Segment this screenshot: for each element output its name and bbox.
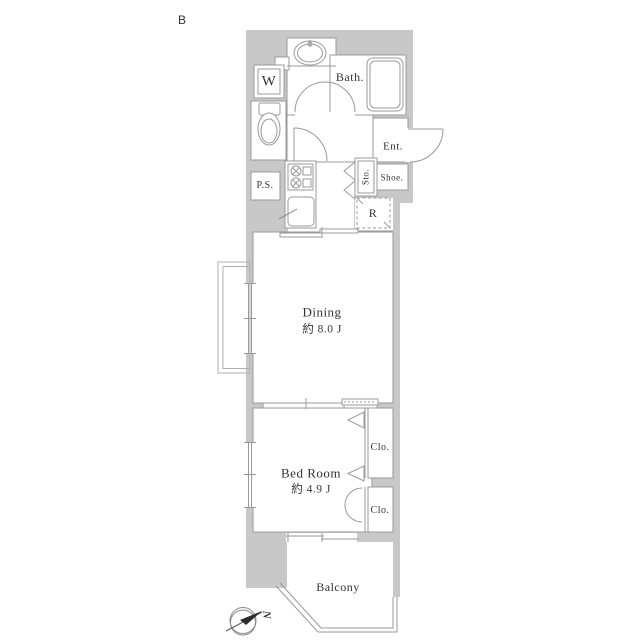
compass-north-label: N	[261, 611, 272, 619]
shoe-box-label: Shoe.	[381, 174, 404, 183]
refrigerator-label: R	[369, 207, 378, 219]
entrance-label: Ent.	[383, 142, 403, 153]
pipe-space-label: P.S.	[256, 181, 273, 191]
sliding-panel	[263, 403, 344, 408]
sliding-panel	[320, 229, 358, 233]
bathtub-inner	[370, 61, 400, 108]
unit-label: B	[178, 14, 186, 26]
balcony-label: Balcony	[316, 581, 360, 593]
dining-label: Dining	[302, 306, 341, 319]
floor-plan-drawing	[0, 0, 640, 640]
bath-label: Bath.	[336, 71, 364, 83]
bedroom-area-label: 約 4.9 J	[291, 484, 331, 496]
bedroom-label: Bed Room	[281, 467, 341, 480]
closet-lower-label: Clo.	[371, 506, 390, 516]
door-arc	[410, 129, 443, 162]
dining-area-label: 約 8.0 J	[302, 324, 342, 336]
compass-icon	[226, 608, 262, 636]
floor-plan: B W Bath. Ent. Sto. Shoe. P.S. R Dining …	[0, 0, 640, 640]
storage-label: Sto.	[362, 169, 371, 185]
washer-label: W	[262, 75, 277, 90]
sliding-panel	[280, 233, 322, 237]
hallway-upper	[287, 115, 373, 162]
closet-upper-label: Clo.	[371, 443, 390, 453]
entrance-door-gap	[405, 128, 413, 162]
wall-right-strip	[393, 203, 400, 597]
bath-door-gap	[295, 112, 355, 118]
